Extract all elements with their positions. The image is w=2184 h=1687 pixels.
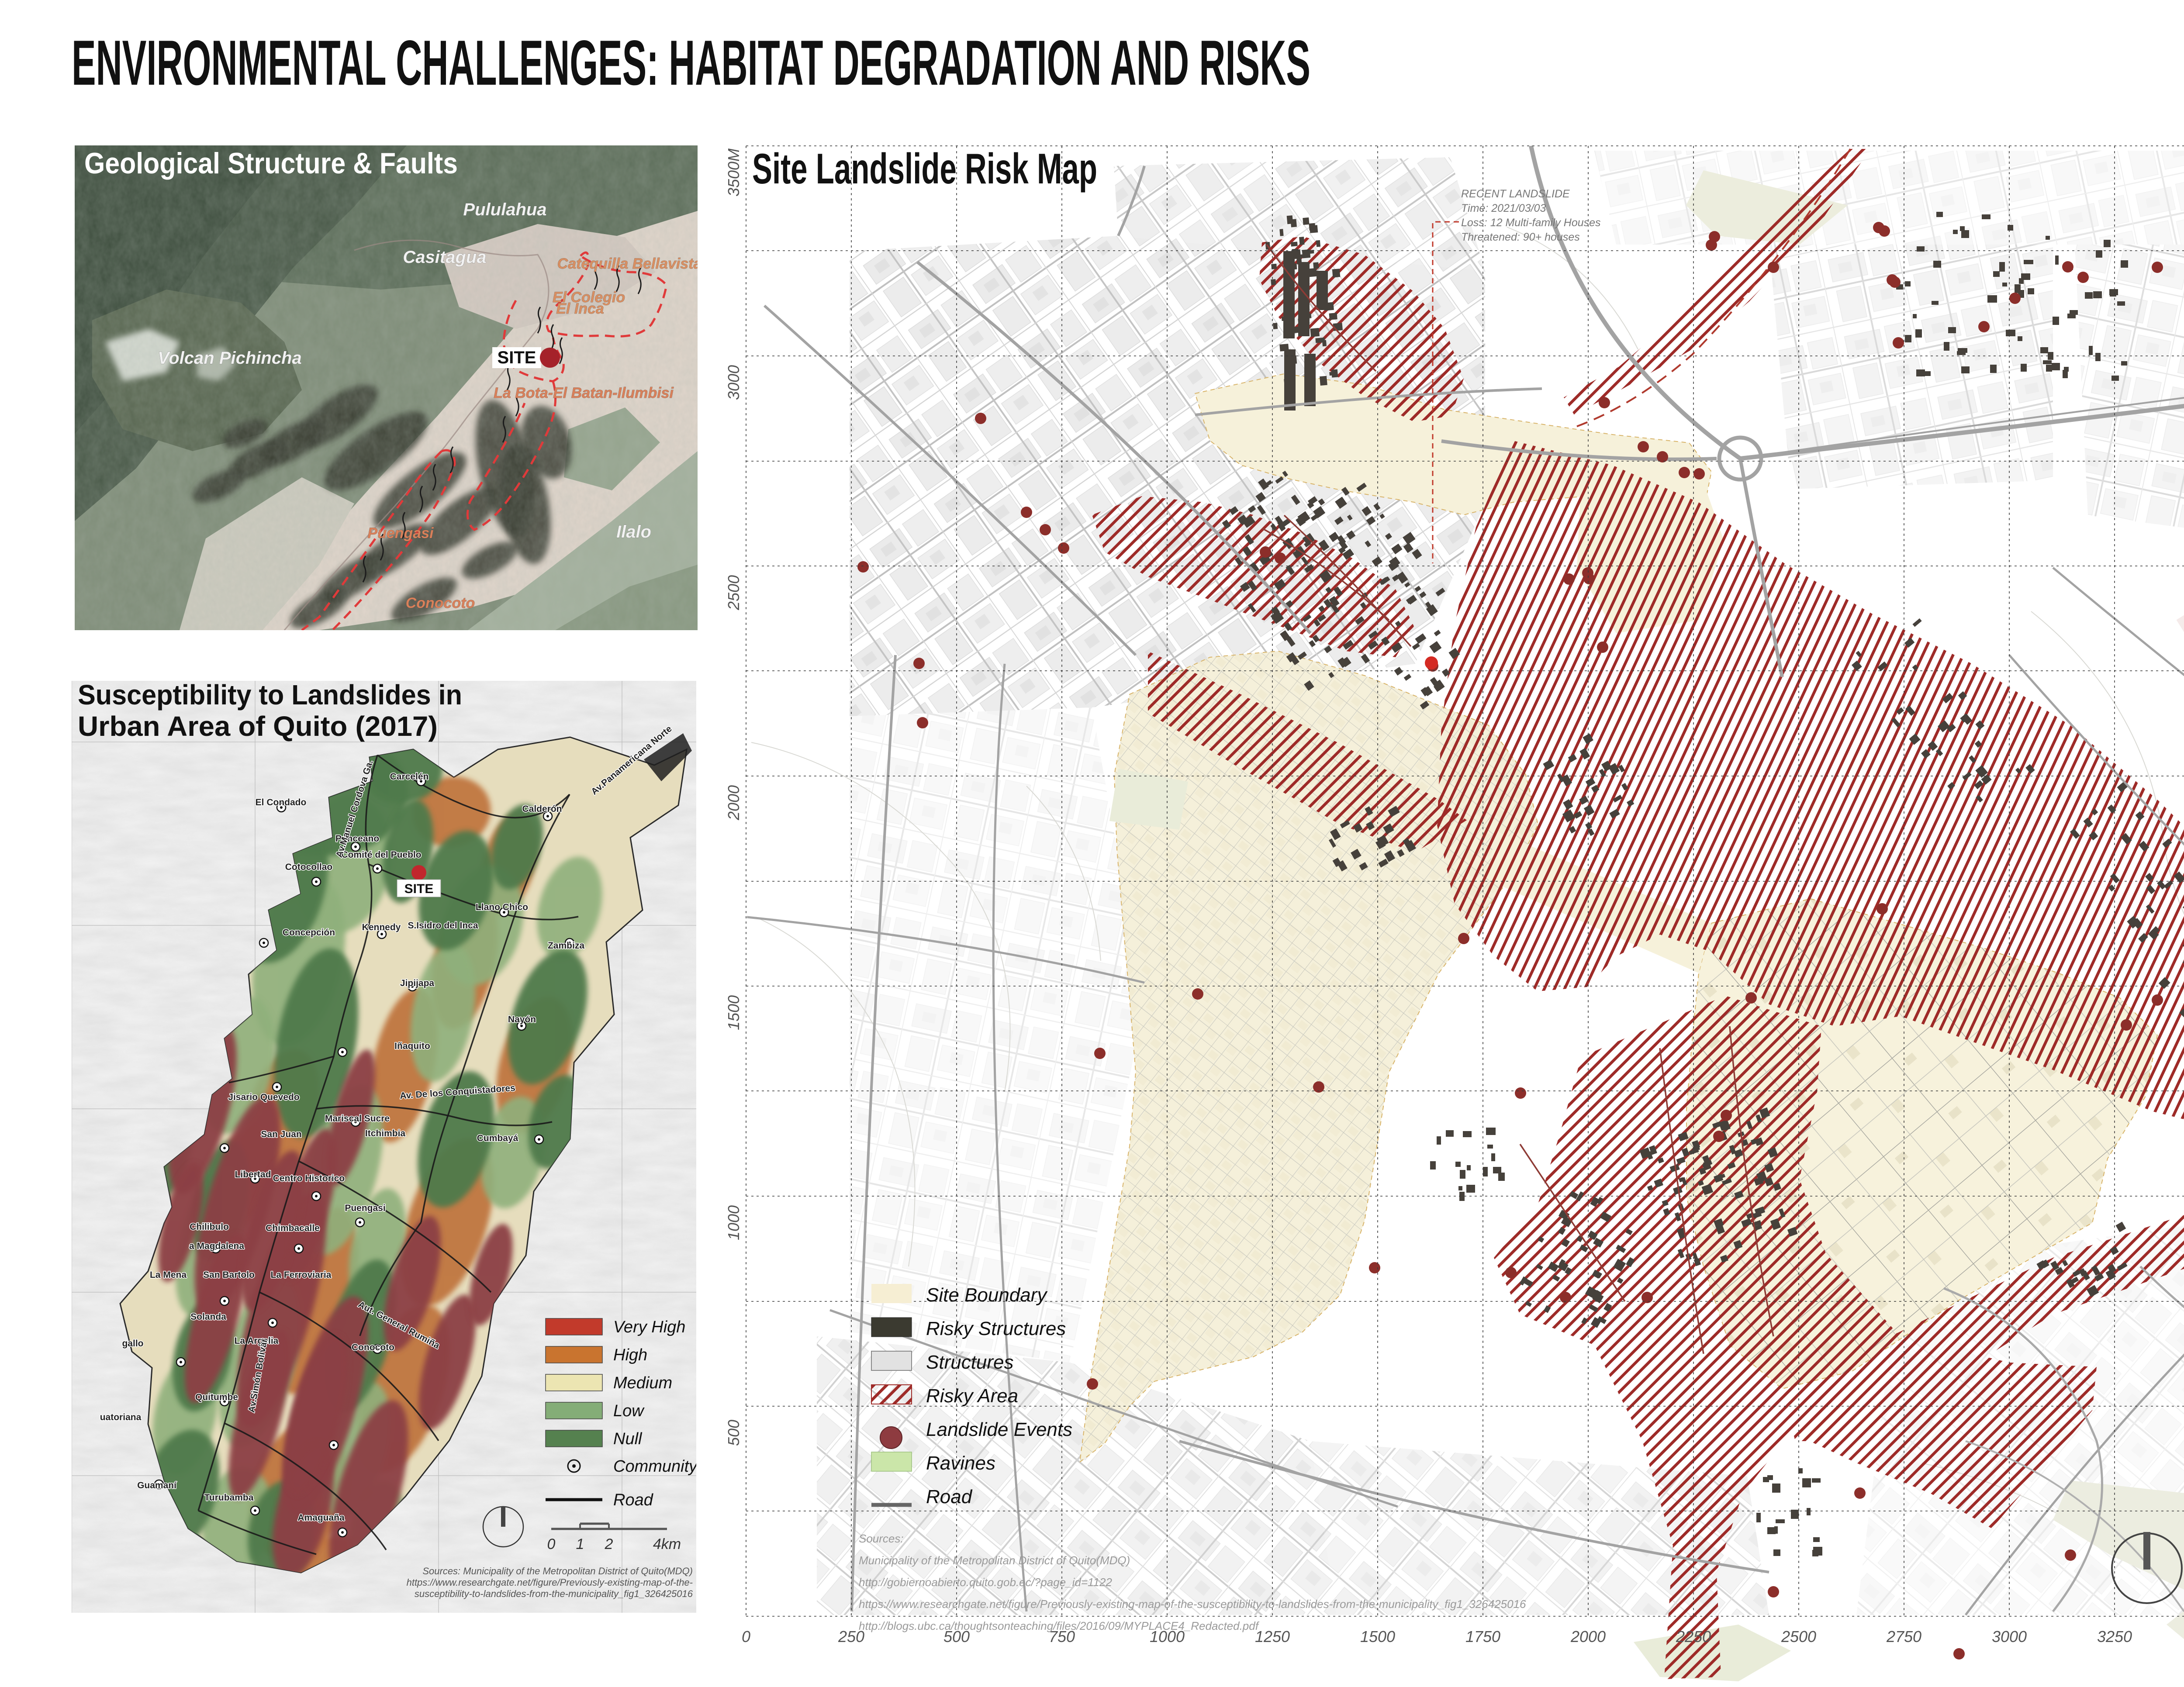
svg-text:La Mena: La Mena	[150, 1270, 187, 1280]
svg-text:Guamaní: Guamaní	[137, 1480, 177, 1490]
svg-text:Chilibulo: Chilibulo	[190, 1222, 229, 1232]
svg-text:https://www.researchgate.net/f: https://www.researchgate.net/figure/Prev…	[859, 1597, 1526, 1611]
svg-text:S.Isidro del Inca: S.Isidro del Inca	[408, 921, 478, 931]
svg-text:http://gobiernoabierto.quito.g: http://gobiernoabierto.quito.gob.ec/?pag…	[859, 1576, 1112, 1589]
svg-text:Zambiza: Zambiza	[548, 941, 584, 951]
svg-text:2750: 2750	[1886, 1628, 1921, 1646]
svg-text:Llano Chico: Llano Chico	[476, 902, 528, 912]
svg-text:http://blogs.ubc.ca/thoughtson: http://blogs.ubc.ca/thoughtsonteaching/f…	[859, 1619, 1260, 1632]
svg-text:3500M: 3500M	[725, 148, 743, 197]
svg-text:4km: 4km	[653, 1536, 681, 1552]
svg-text:Low: Low	[613, 1402, 645, 1420]
svg-text:La Argelia: La Argelia	[235, 1336, 279, 1346]
svg-text:2: 2	[605, 1536, 613, 1552]
svg-text:Calderón: Calderón	[522, 804, 562, 814]
svg-text:RECENT LANDSLIDE: RECENT LANDSLIDE	[1461, 188, 1570, 200]
svg-text:500: 500	[725, 1420, 743, 1446]
svg-text:Nayón: Nayón	[508, 1014, 536, 1025]
svg-text:Turubamba: Turubamba	[204, 1493, 254, 1503]
svg-text:2000: 2000	[725, 785, 743, 821]
svg-text:0: 0	[547, 1536, 556, 1552]
svg-text:San Bartolo: San Bartolo	[203, 1270, 255, 1280]
svg-text:Centro Historico: Centro Historico	[273, 1173, 345, 1183]
svg-text:0: 0	[742, 1628, 750, 1646]
svg-text:2000: 2000	[1570, 1628, 1606, 1646]
svg-text:2500: 2500	[1781, 1628, 1816, 1646]
svg-text:2250: 2250	[1676, 1628, 1711, 1646]
svg-text:Risky Area: Risky Area	[926, 1385, 1018, 1407]
svg-text:Very High: Very High	[613, 1318, 685, 1336]
svg-text:Sources: Municipality of the M: Sources: Municipality of the Metropolita…	[422, 1566, 693, 1577]
svg-text:Casitagua: Casitagua	[403, 248, 486, 267]
svg-text:Site Boundary: Site Boundary	[926, 1284, 1048, 1306]
svg-text:Cotocollao: Cotocollao	[285, 862, 333, 872]
svg-text:Structures: Structures	[926, 1352, 1014, 1373]
svg-text:Landslide Events: Landslide Events	[926, 1419, 1072, 1440]
svg-text:Cumbayá: Cumbayá	[477, 1133, 518, 1143]
svg-text:2500: 2500	[725, 575, 743, 611]
svg-text:La Bota-El Batan-Ilumbisi: La Bota-El Batan-Ilumbisi	[494, 385, 674, 401]
svg-text:Catequilla Bellavista: Catequilla Bellavista	[557, 255, 698, 272]
svg-text:Amaguaña: Amaguaña	[297, 1513, 345, 1523]
svg-text:Road: Road	[926, 1486, 973, 1508]
svg-text:Road: Road	[613, 1491, 654, 1509]
svg-text:Medium: Medium	[613, 1374, 672, 1392]
svg-text:uatoriana: uatoriana	[100, 1412, 142, 1422]
svg-text:La Ferroviaria: La Ferroviaria	[271, 1270, 332, 1280]
svg-text:3000: 3000	[725, 365, 743, 400]
svg-text:Time: 2021/03/03: Time: 2021/03/03	[1461, 202, 1546, 214]
svg-text:Threatened: 90+ houses: Threatened: 90+ houses	[1461, 231, 1580, 243]
svg-text:Conocoto: Conocoto	[406, 595, 475, 611]
svg-text:gallo: gallo	[122, 1339, 143, 1349]
svg-text:Chimbacalle: Chimbacalle	[266, 1223, 320, 1233]
svg-text:1250: 1250	[1255, 1628, 1290, 1646]
svg-text:Jipijapa: Jipijapa	[400, 978, 435, 988]
svg-text:Kennedy: Kennedy	[362, 922, 401, 932]
svg-text:1000: 1000	[725, 1205, 743, 1240]
svg-text:Puengasi: Puengasi	[345, 1203, 385, 1213]
svg-text:Sources:: Sources:	[859, 1532, 904, 1545]
svg-text:ENVIRONMENTAL CHALLENGES: HABI: ENVIRONMENTAL CHALLENGES: HABITAT DEGRAD…	[72, 35, 1310, 96]
svg-text:1750: 1750	[1465, 1628, 1500, 1646]
svg-text:San Juan: San Juan	[261, 1129, 301, 1139]
svg-text:Carcelén: Carcelén	[390, 772, 429, 782]
svg-text:Community: Community	[613, 1457, 696, 1476]
svg-text:Ravines: Ravines	[926, 1452, 995, 1474]
svg-text:1: 1	[576, 1536, 584, 1552]
svg-text:Volcan Pichincha: Volcan Pichincha	[158, 348, 302, 368]
svg-text:Susceptibility to Landslides i: Susceptibility to Landslides in	[78, 681, 462, 711]
svg-text:SITE: SITE	[404, 882, 434, 896]
svg-text:Concepción: Concepción	[283, 928, 335, 938]
svg-text:SITE: SITE	[498, 348, 536, 367]
svg-text:1500: 1500	[725, 995, 743, 1030]
svg-text:Jisario Quevedo: Jisario Quevedo	[228, 1092, 299, 1102]
svg-text:Puengasi: Puengasi	[367, 525, 434, 542]
svg-text:High: High	[613, 1346, 647, 1364]
svg-text:Pululahua: Pululahua	[463, 200, 546, 219]
svg-text:3000: 3000	[1992, 1628, 2027, 1646]
svg-text:Solanda: Solanda	[190, 1312, 226, 1322]
svg-text:Comité del Pueblo: Comité del Pueblo	[341, 850, 421, 860]
svg-text:a Magdalena: a Magdalena	[189, 1241, 244, 1251]
svg-text:Municipality of the Metropolit: Municipality of the Metropolitan Distric…	[859, 1554, 1130, 1567]
svg-text:Iñaquito: Iñaquito	[394, 1041, 430, 1051]
svg-text:Mariscal Sucre: Mariscal Sucre	[325, 1114, 390, 1124]
svg-text:Risky Structures: Risky Structures	[926, 1318, 1066, 1339]
svg-text:Quitumbe: Quitumbe	[195, 1392, 238, 1402]
svg-text:Itchimbia: Itchimbia	[365, 1128, 406, 1138]
svg-text:1500: 1500	[1360, 1628, 1395, 1646]
svg-text:El Condado: El Condado	[256, 797, 307, 807]
svg-text:susceptibility-to-landslides-f: susceptibility-to-landslides-from-the-mu…	[415, 1588, 693, 1599]
svg-text:Loss: 12 Multi-family Houses: Loss: 12 Multi-family Houses	[1461, 217, 1601, 229]
svg-text:El Inca: El Inca	[556, 300, 604, 317]
svg-text:Site Landslide Risk Map: Site Landslide Risk Map	[752, 145, 1097, 193]
svg-text:Geological Structure & Faults: Geological Structure & Faults	[84, 147, 458, 180]
svg-text:Null: Null	[613, 1430, 643, 1448]
svg-text:Ilalo: Ilalo	[616, 522, 651, 542]
svg-text:Conocoto: Conocoto	[352, 1342, 394, 1352]
svg-text:https://www.researchgate.net/f: https://www.researchgate.net/figure/Prev…	[407, 1577, 693, 1588]
svg-text:3250: 3250	[2097, 1628, 2132, 1646]
svg-text:Urban Area of Quito (2017): Urban Area of Quito (2017)	[78, 711, 438, 742]
svg-text:Libertad: Libertad	[235, 1170, 271, 1180]
